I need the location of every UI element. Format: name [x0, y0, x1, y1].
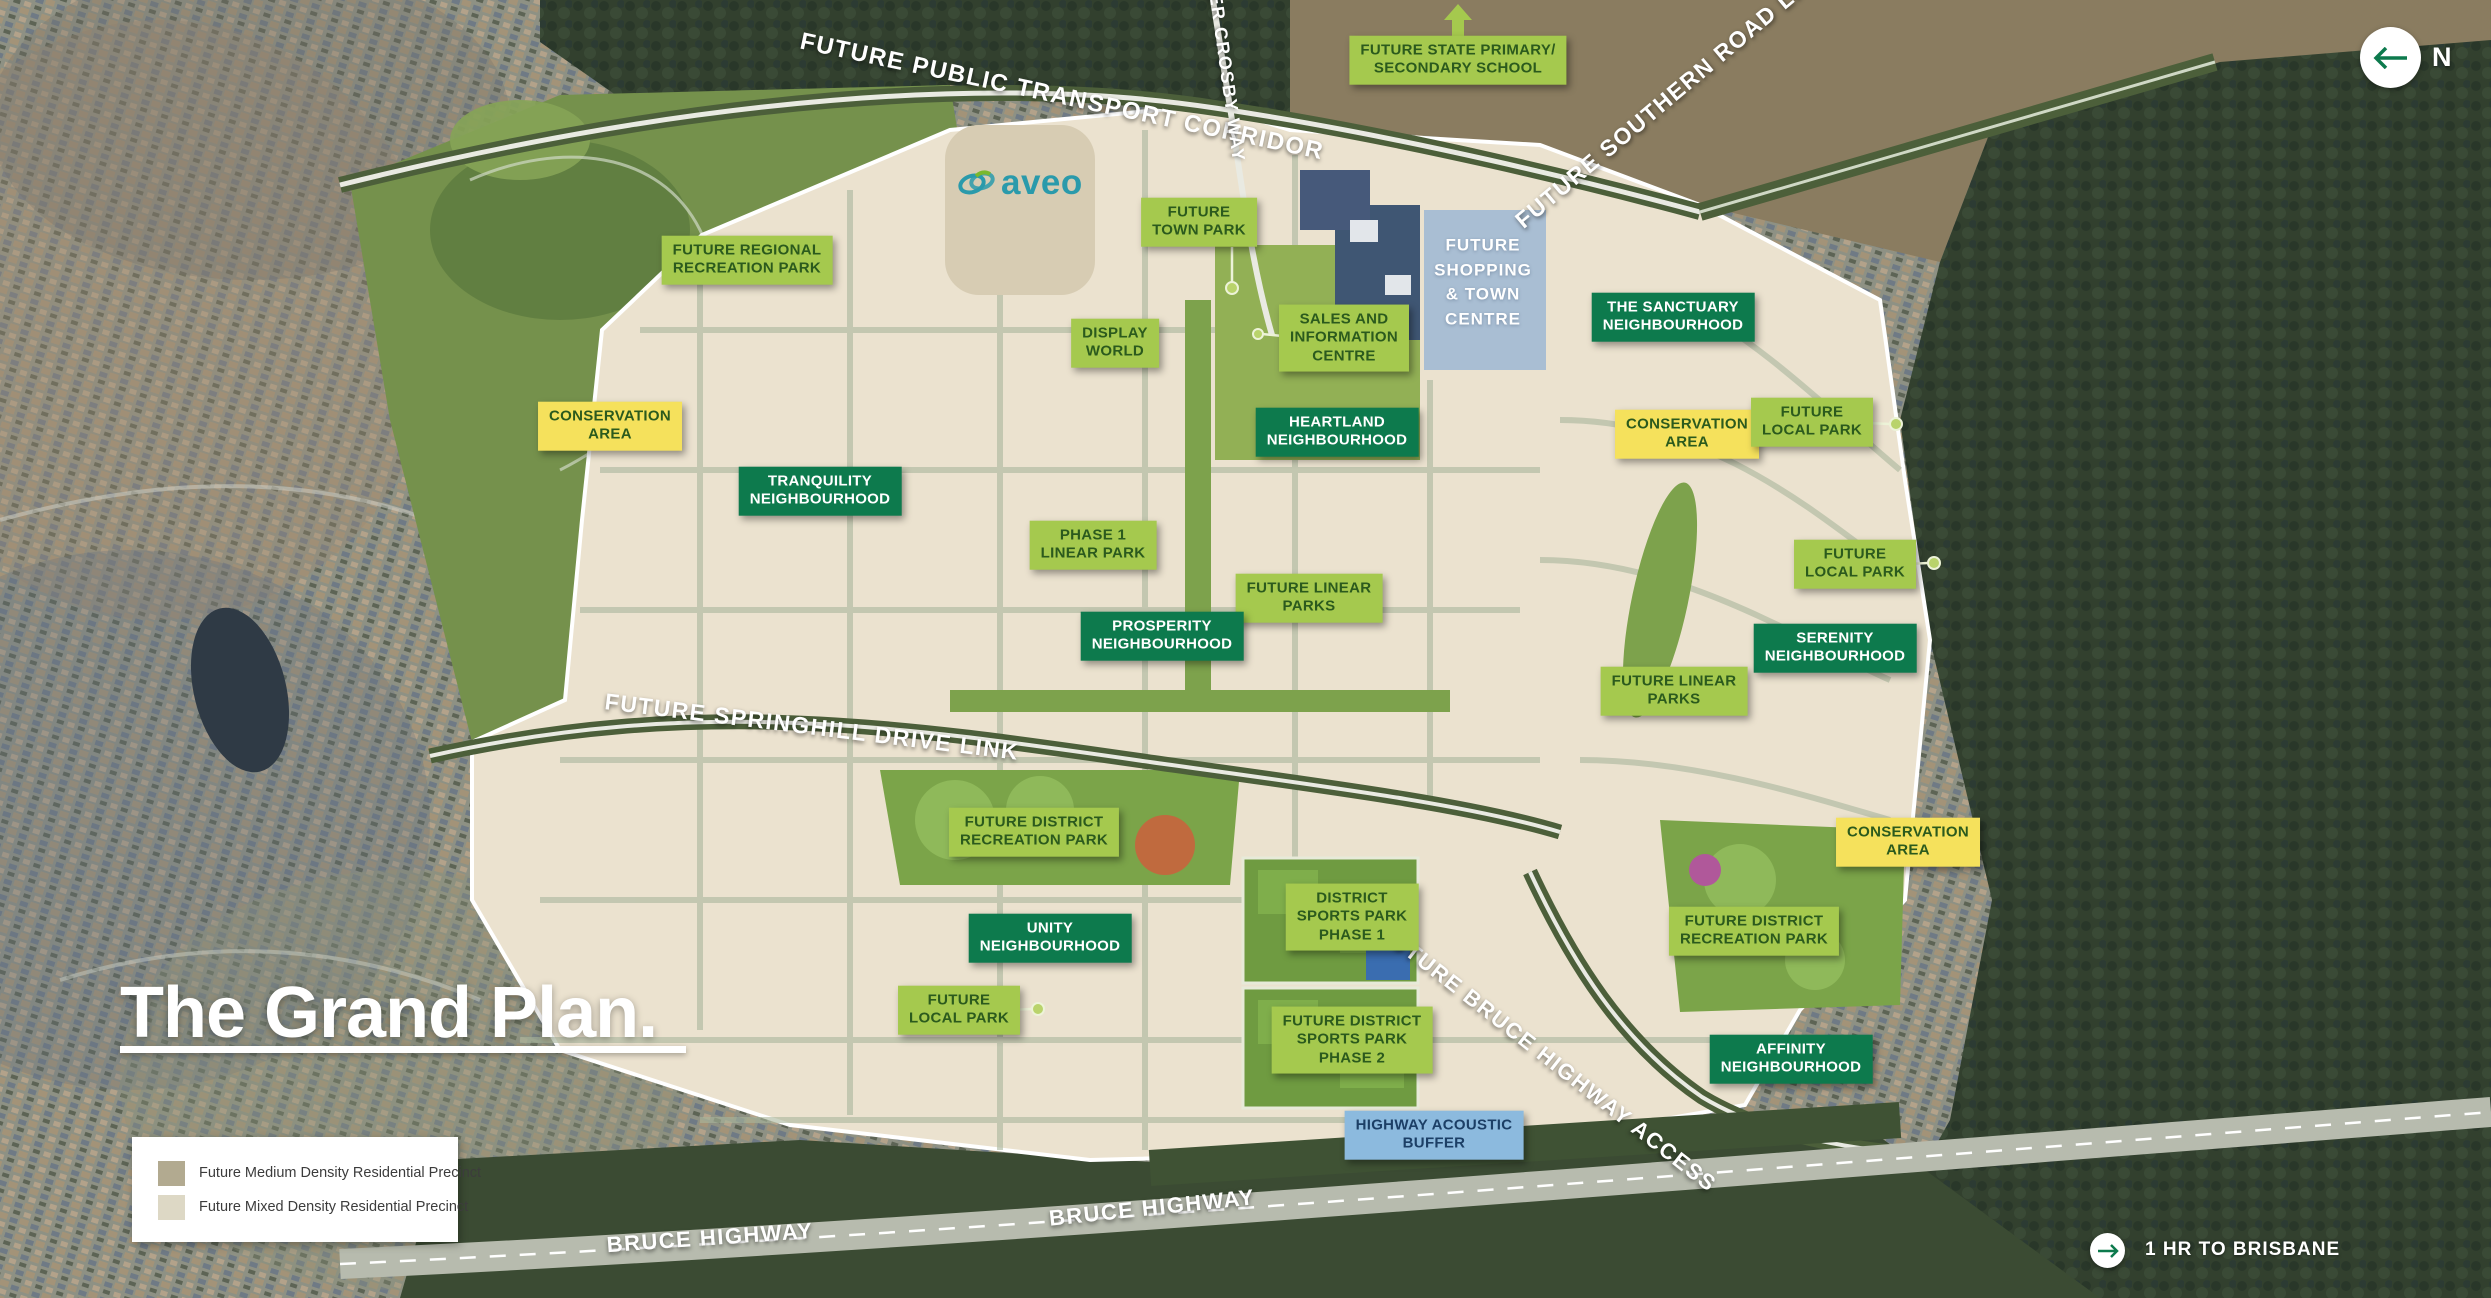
aveo-logo-icon: [956, 169, 998, 197]
future-district-recreation-park-west-label: FUTURE DISTRICT RECREATION PARK: [949, 808, 1119, 857]
sales-and-information-centre-label: SALES AND INFORMATION CENTRE: [1279, 305, 1409, 372]
unity-neighbourhood-label: UNITY NEIGHBOURHOOD: [969, 914, 1132, 963]
right-arrow-icon: [2097, 1244, 2119, 1258]
title-underline: [120, 1046, 686, 1053]
aveo-logo: aveo: [956, 163, 1083, 203]
brisbane-direction-marker: [2090, 1233, 2125, 1268]
conservation-area-east-label: CONSERVATION AREA: [1615, 410, 1759, 459]
masterplan-map: aveo FUTURE STATE PRIMARY/ SECONDARY SCH…: [0, 0, 2491, 1298]
display-world-label: DISPLAY WORLD: [1071, 319, 1159, 368]
future-regional-recreation-park-label: FUTURE REGIONAL RECREATION PARK: [662, 236, 833, 285]
medium-density-swatch: [158, 1161, 185, 1186]
district-sports-park-phase-1-label: DISTRICT SPORTS PARK PHASE 1: [1286, 884, 1419, 951]
page-title: The Grand Plan.: [120, 972, 657, 1054]
tranquility-neighbourhood-label: TRANQUILITY NEIGHBOURHOOD: [739, 467, 902, 516]
aveo-wordmark: aveo: [1001, 163, 1083, 203]
mixed-density-swatch: [158, 1195, 185, 1220]
highway-acoustic-buffer-label: HIGHWAY ACOUSTIC BUFFER: [1345, 1111, 1524, 1160]
travel-time-label: 1 HR TO BRISBANE: [2145, 1239, 2340, 1261]
aveo-parcel: [945, 125, 1095, 295]
future-town-park-label: FUTURE TOWN PARK: [1141, 198, 1257, 247]
future-district-recreation-park-east-label: FUTURE DISTRICT RECREATION PARK: [1669, 907, 1839, 956]
legend-item-label: Future Mixed Density Residential Precinc…: [199, 1199, 468, 1215]
the-sanctuary-neighbourhood-label: THE SANCTUARY NEIGHBOURHOOD: [1592, 293, 1755, 342]
legend-item-mixed-density: Future Mixed Density Residential Precinc…: [158, 1194, 468, 1220]
heartland-neighbourhood-label: HEARTLAND NEIGHBOURHOOD: [1256, 408, 1419, 457]
school-direction-arrow-icon: [1444, 4, 1472, 40]
legend-item-label: Future Medium Density Residential Precin…: [199, 1165, 481, 1181]
prosperity-neighbourhood-label: PROSPERITY NEIGHBOURHOOD: [1081, 612, 1244, 661]
future-district-sports-park-phase-2-label: FUTURE DISTRICT SPORTS PARK PHASE 2: [1272, 1007, 1433, 1074]
future-local-park-serenity-label: FUTURE LOCAL PARK: [1794, 540, 1916, 589]
legend-box: Future Medium Density Residential Precin…: [132, 1137, 458, 1242]
serenity-neighbourhood-label: SERENITY NEIGHBOURHOOD: [1754, 624, 1917, 673]
future-linear-parks-central-label: FUTURE LINEAR PARKS: [1236, 574, 1383, 623]
future-state-primary-secondary-school-label: FUTURE STATE PRIMARY/ SECONDARY SCHOOL: [1349, 36, 1566, 85]
future-local-park-sanctuary-label: FUTURE LOCAL PARK: [1751, 398, 1873, 447]
future-shopping-town-centre-label: FUTURE SHOPPING & TOWN CENTRE: [1423, 228, 1543, 339]
compass: [2360, 27, 2421, 88]
legend-item-medium-density: Future Medium Density Residential Precin…: [158, 1160, 481, 1186]
conservation-area-west-label: CONSERVATION AREA: [538, 402, 682, 451]
aerial-map-backdrop: [0, 0, 2491, 1298]
north-arrow-icon: [2373, 47, 2409, 69]
north-label: N: [2432, 42, 2452, 73]
affinity-neighbourhood-label: AFFINITY NEIGHBOURHOOD: [1710, 1035, 1873, 1084]
future-local-park-unity-label: FUTURE LOCAL PARK: [898, 986, 1020, 1035]
phase-1-linear-park-label: PHASE 1 LINEAR PARK: [1030, 521, 1157, 570]
conservation-area-south-label: CONSERVATION AREA: [1836, 818, 1980, 867]
future-linear-parks-east-label: FUTURE LINEAR PARKS: [1601, 667, 1748, 716]
